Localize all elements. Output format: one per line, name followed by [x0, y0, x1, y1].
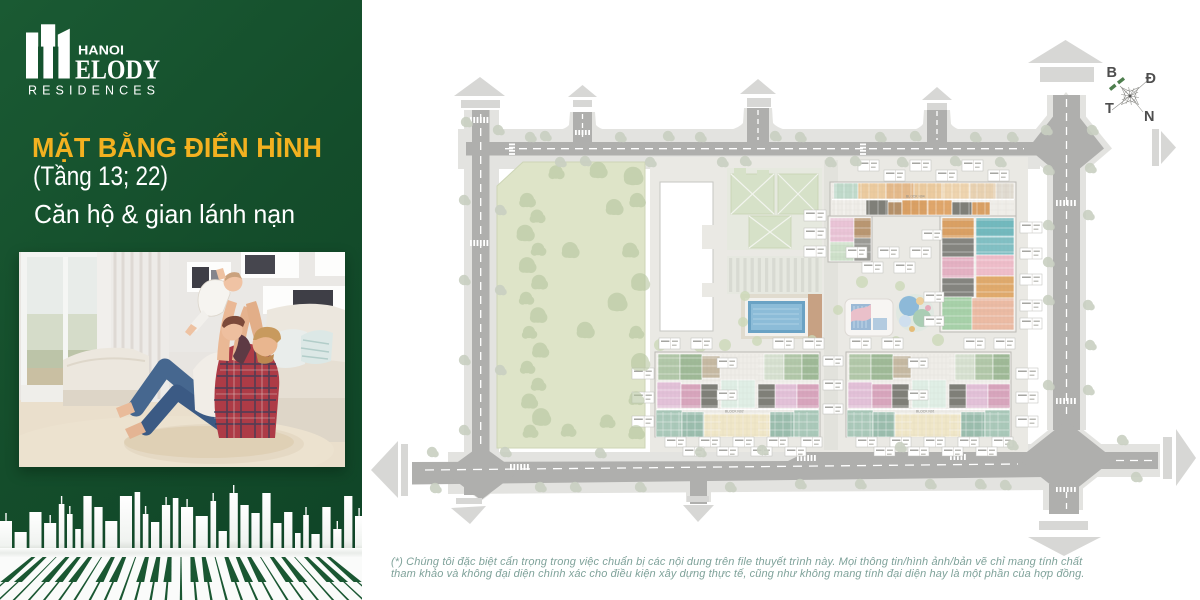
- svg-text:ELODY: ELODY: [75, 55, 160, 85]
- svg-text:T: T: [1105, 101, 1114, 117]
- svg-text:MẶT BẰNG ĐIỂN HÌNH: MẶT BẰNG ĐIỂN HÌNH: [32, 132, 322, 163]
- svg-text:RESIDENCES: RESIDENCES: [28, 84, 155, 98]
- svg-text:B: B: [1107, 65, 1117, 81]
- svg-text:(Tầng 13; 22): (Tầng 13; 22): [33, 161, 168, 191]
- svg-text:BLOCK N01: BLOCK N01: [916, 410, 935, 414]
- svg-text:Căn hộ & gian lánh nạn: Căn hộ & gian lánh nạn: [34, 199, 295, 229]
- svg-text:Đ: Đ: [1146, 71, 1156, 87]
- svg-text:BLOCK N02: BLOCK N02: [725, 410, 744, 414]
- svg-text:N: N: [1144, 109, 1154, 125]
